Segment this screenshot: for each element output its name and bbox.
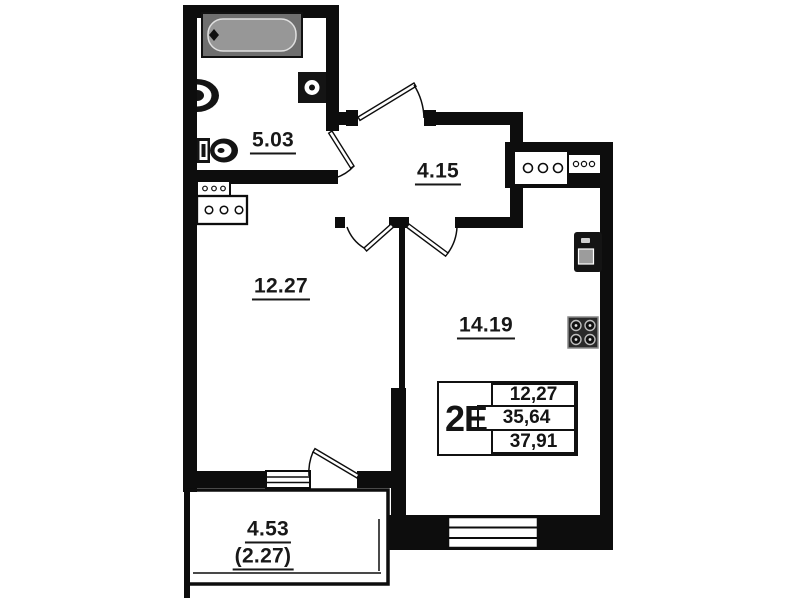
room-label-kitchen-living: 14.19	[457, 314, 515, 339]
kitchen-window	[448, 517, 538, 548]
vent-box-large	[197, 196, 247, 224]
stove	[568, 317, 598, 348]
toilet	[197, 138, 238, 163]
stamp-living-area: 12,27	[491, 383, 576, 407]
kitchen-sink	[574, 232, 602, 272]
wall-bathroom-right	[326, 5, 339, 131]
wall-partition	[399, 228, 405, 390]
room-label-balcony-reduced: (2.27)	[233, 545, 294, 570]
kitchen-vent-left	[515, 152, 567, 184]
wall-partition-lower	[391, 388, 406, 518]
bathtub	[202, 13, 302, 57]
unit-type-cell: 2E	[439, 383, 493, 454]
wall-hall-bottom-stub	[335, 217, 345, 228]
stamp-total-area: 37,91	[491, 429, 576, 454]
floor-plan: 5.03 4.15 12.27 14.19 4.53 (2.27) 2E 12,…	[0, 0, 799, 600]
room-label-bathroom: 5.03	[250, 129, 296, 154]
vent-box-small	[197, 181, 230, 196]
floor-plan-drawing	[0, 0, 799, 600]
entrance-jamb-left	[346, 110, 358, 126]
wall-room-bottom-right	[357, 471, 406, 488]
room-label-balcony: 4.53	[245, 518, 291, 543]
wall-hall-bottom-right	[455, 217, 523, 228]
washing-machine	[298, 72, 326, 103]
entrance-door	[358, 83, 424, 120]
room-label-room: 12.27	[252, 275, 310, 300]
wall-entrance-right	[424, 112, 523, 125]
wall-left	[183, 5, 197, 492]
unit-stamp: 2E 12,27 35,64 37,91	[437, 381, 578, 456]
kitchen-vent-right	[569, 155, 600, 173]
wash-basin	[197, 79, 219, 112]
room-label-hallway: 4.15	[415, 160, 461, 185]
balcony-window	[266, 471, 310, 488]
kitchen-door	[407, 224, 457, 256]
wall-room-bottom-left	[196, 471, 268, 488]
balcony-door	[309, 449, 359, 478]
room-door	[347, 224, 394, 251]
